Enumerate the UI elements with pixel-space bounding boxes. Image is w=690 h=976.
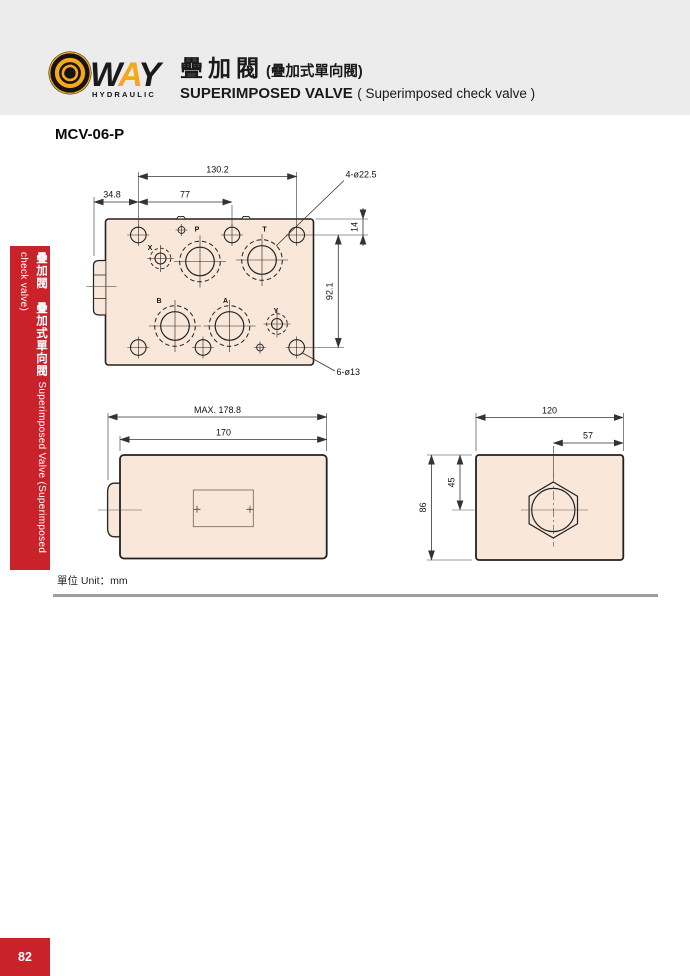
- valve-body-side: [120, 455, 327, 559]
- dim-plug-offset: 57: [583, 431, 593, 441]
- dim-plug-center-height: 45: [447, 477, 457, 487]
- port-label-a: A: [223, 298, 228, 305]
- port-label-p: P: [195, 227, 200, 234]
- dim-hole-span-width: 130.2: [206, 165, 229, 175]
- locating-bump: [242, 216, 251, 219]
- dim-max-length: MAX. 178.8: [194, 405, 241, 415]
- port-label-y: Y: [274, 308, 279, 315]
- dim-body-length: 170: [216, 428, 231, 438]
- dim-left-offset: 34.8: [103, 190, 121, 200]
- port-label-b: B: [156, 298, 161, 305]
- dim-hole-span-height: 92.1: [325, 283, 335, 301]
- port-label-t: T: [262, 227, 267, 234]
- technical-drawings: P T B A: [0, 0, 690, 976]
- side-view: MAX. 178.8 170: [98, 405, 327, 559]
- catalog-page: WAY HYDRAULIC 疊加閥(疊加式單向閥) SUPERIMPOSED V…: [0, 0, 690, 976]
- page-number: 82: [0, 938, 50, 976]
- dim-top-edge-to-holes: 14: [350, 222, 360, 232]
- port-label-x: X: [148, 245, 153, 252]
- dim-height: 86: [418, 502, 428, 512]
- callout-small-holes: 6-ø13: [337, 367, 361, 377]
- unit-label: 單位 Unit：mm: [57, 573, 128, 588]
- dim-mid-hole-offset: 77: [180, 190, 190, 200]
- end-view: 120 57 86 45: [418, 406, 623, 561]
- locating-bump: [177, 216, 186, 219]
- top-view: P T B A: [87, 165, 377, 378]
- section-divider: [53, 594, 658, 597]
- dim-width: 120: [542, 406, 557, 416]
- callout-large-holes: 4-ø22.5: [346, 170, 377, 180]
